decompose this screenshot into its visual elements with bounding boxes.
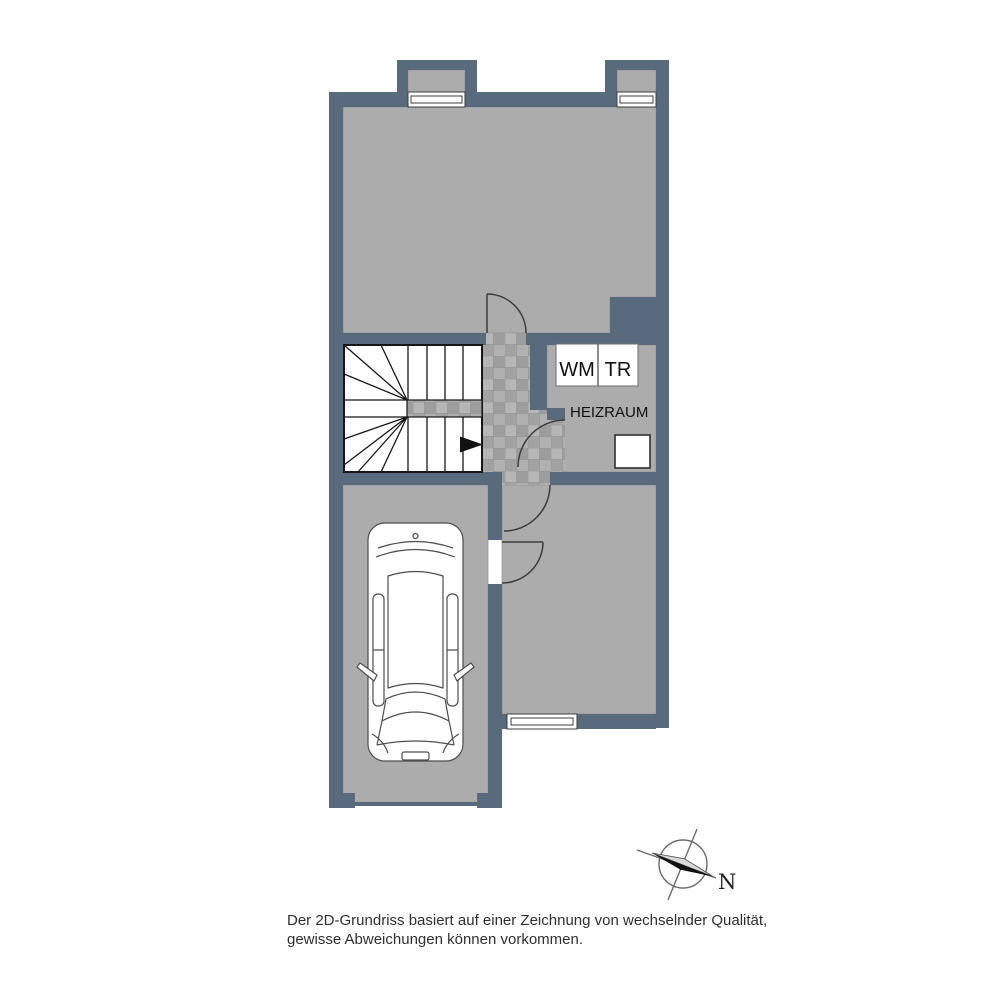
wall-right: [656, 60, 669, 728]
wall-garage-divider-upper: [488, 472, 502, 540]
dryer-label: TR: [605, 359, 632, 381]
window-top-left: [408, 92, 465, 107]
wall-bottom-segment-1: [502, 714, 507, 729]
wall-garage-stub-right: [477, 793, 502, 808]
washer-dryer-box: WM TR: [556, 344, 638, 386]
disclaimer-line-2: gewisse Abweichungen können vorkommen.: [287, 930, 767, 949]
staircase: [344, 345, 483, 472]
hobby-room-floor: [502, 485, 656, 714]
floor-plan-drawing: WM TR HEIZRAUM N: [0, 0, 1000, 1000]
lightwell-left-floor: [408, 70, 465, 92]
wall-left: [329, 92, 343, 808]
lightwell-left-wall-e: [465, 60, 477, 107]
boiler-unit: [615, 435, 650, 468]
compass: N: [637, 829, 736, 900]
wall-boiler-room-stub: [547, 408, 565, 420]
wall-mid-segment-1: [329, 333, 486, 345]
wall-top-segment-1: [329, 92, 408, 107]
window-top-right: [617, 92, 656, 107]
wall-notch-block: [610, 297, 656, 345]
floor-plan-page: WM TR HEIZRAUM N Der 2D-Grundriss basier…: [0, 0, 1000, 1000]
disclaimer-line-1: Der 2D-Grundriss basiert auf einer Zeich…: [287, 911, 767, 930]
tile-corridor-upper: [482, 345, 530, 415]
wall-boiler-room-w: [530, 345, 547, 410]
car-front-plate: [402, 752, 429, 760]
tile-south-threshold: [502, 472, 550, 485]
tile-door-threshold: [486, 333, 526, 345]
car-roof-panel: [388, 572, 443, 689]
car: [357, 523, 474, 761]
garage-door-line: [355, 802, 477, 806]
wall-lower-segment-2: [550, 472, 656, 485]
wall-garage-divider-lower: [488, 584, 502, 793]
boiler-room-label: HEIZRAUM: [570, 404, 648, 421]
stair-gap-strip: [407, 400, 482, 417]
lightwell-right-floor: [617, 70, 656, 92]
wall-garage-stub-left: [329, 793, 355, 808]
wall-top-segment-2: [465, 92, 617, 107]
top-room-floor: [343, 107, 656, 333]
north-label: N: [718, 870, 736, 894]
disclaimer: Der 2D-Grundriss basiert auf einer Zeich…: [287, 911, 767, 949]
washing-machine-label: WM: [559, 359, 595, 381]
window-bottom: [507, 714, 577, 729]
car-antenna: [413, 534, 418, 539]
wall-bottom-segment-2: [577, 714, 656, 729]
wall-lower-segment-1: [329, 472, 488, 485]
